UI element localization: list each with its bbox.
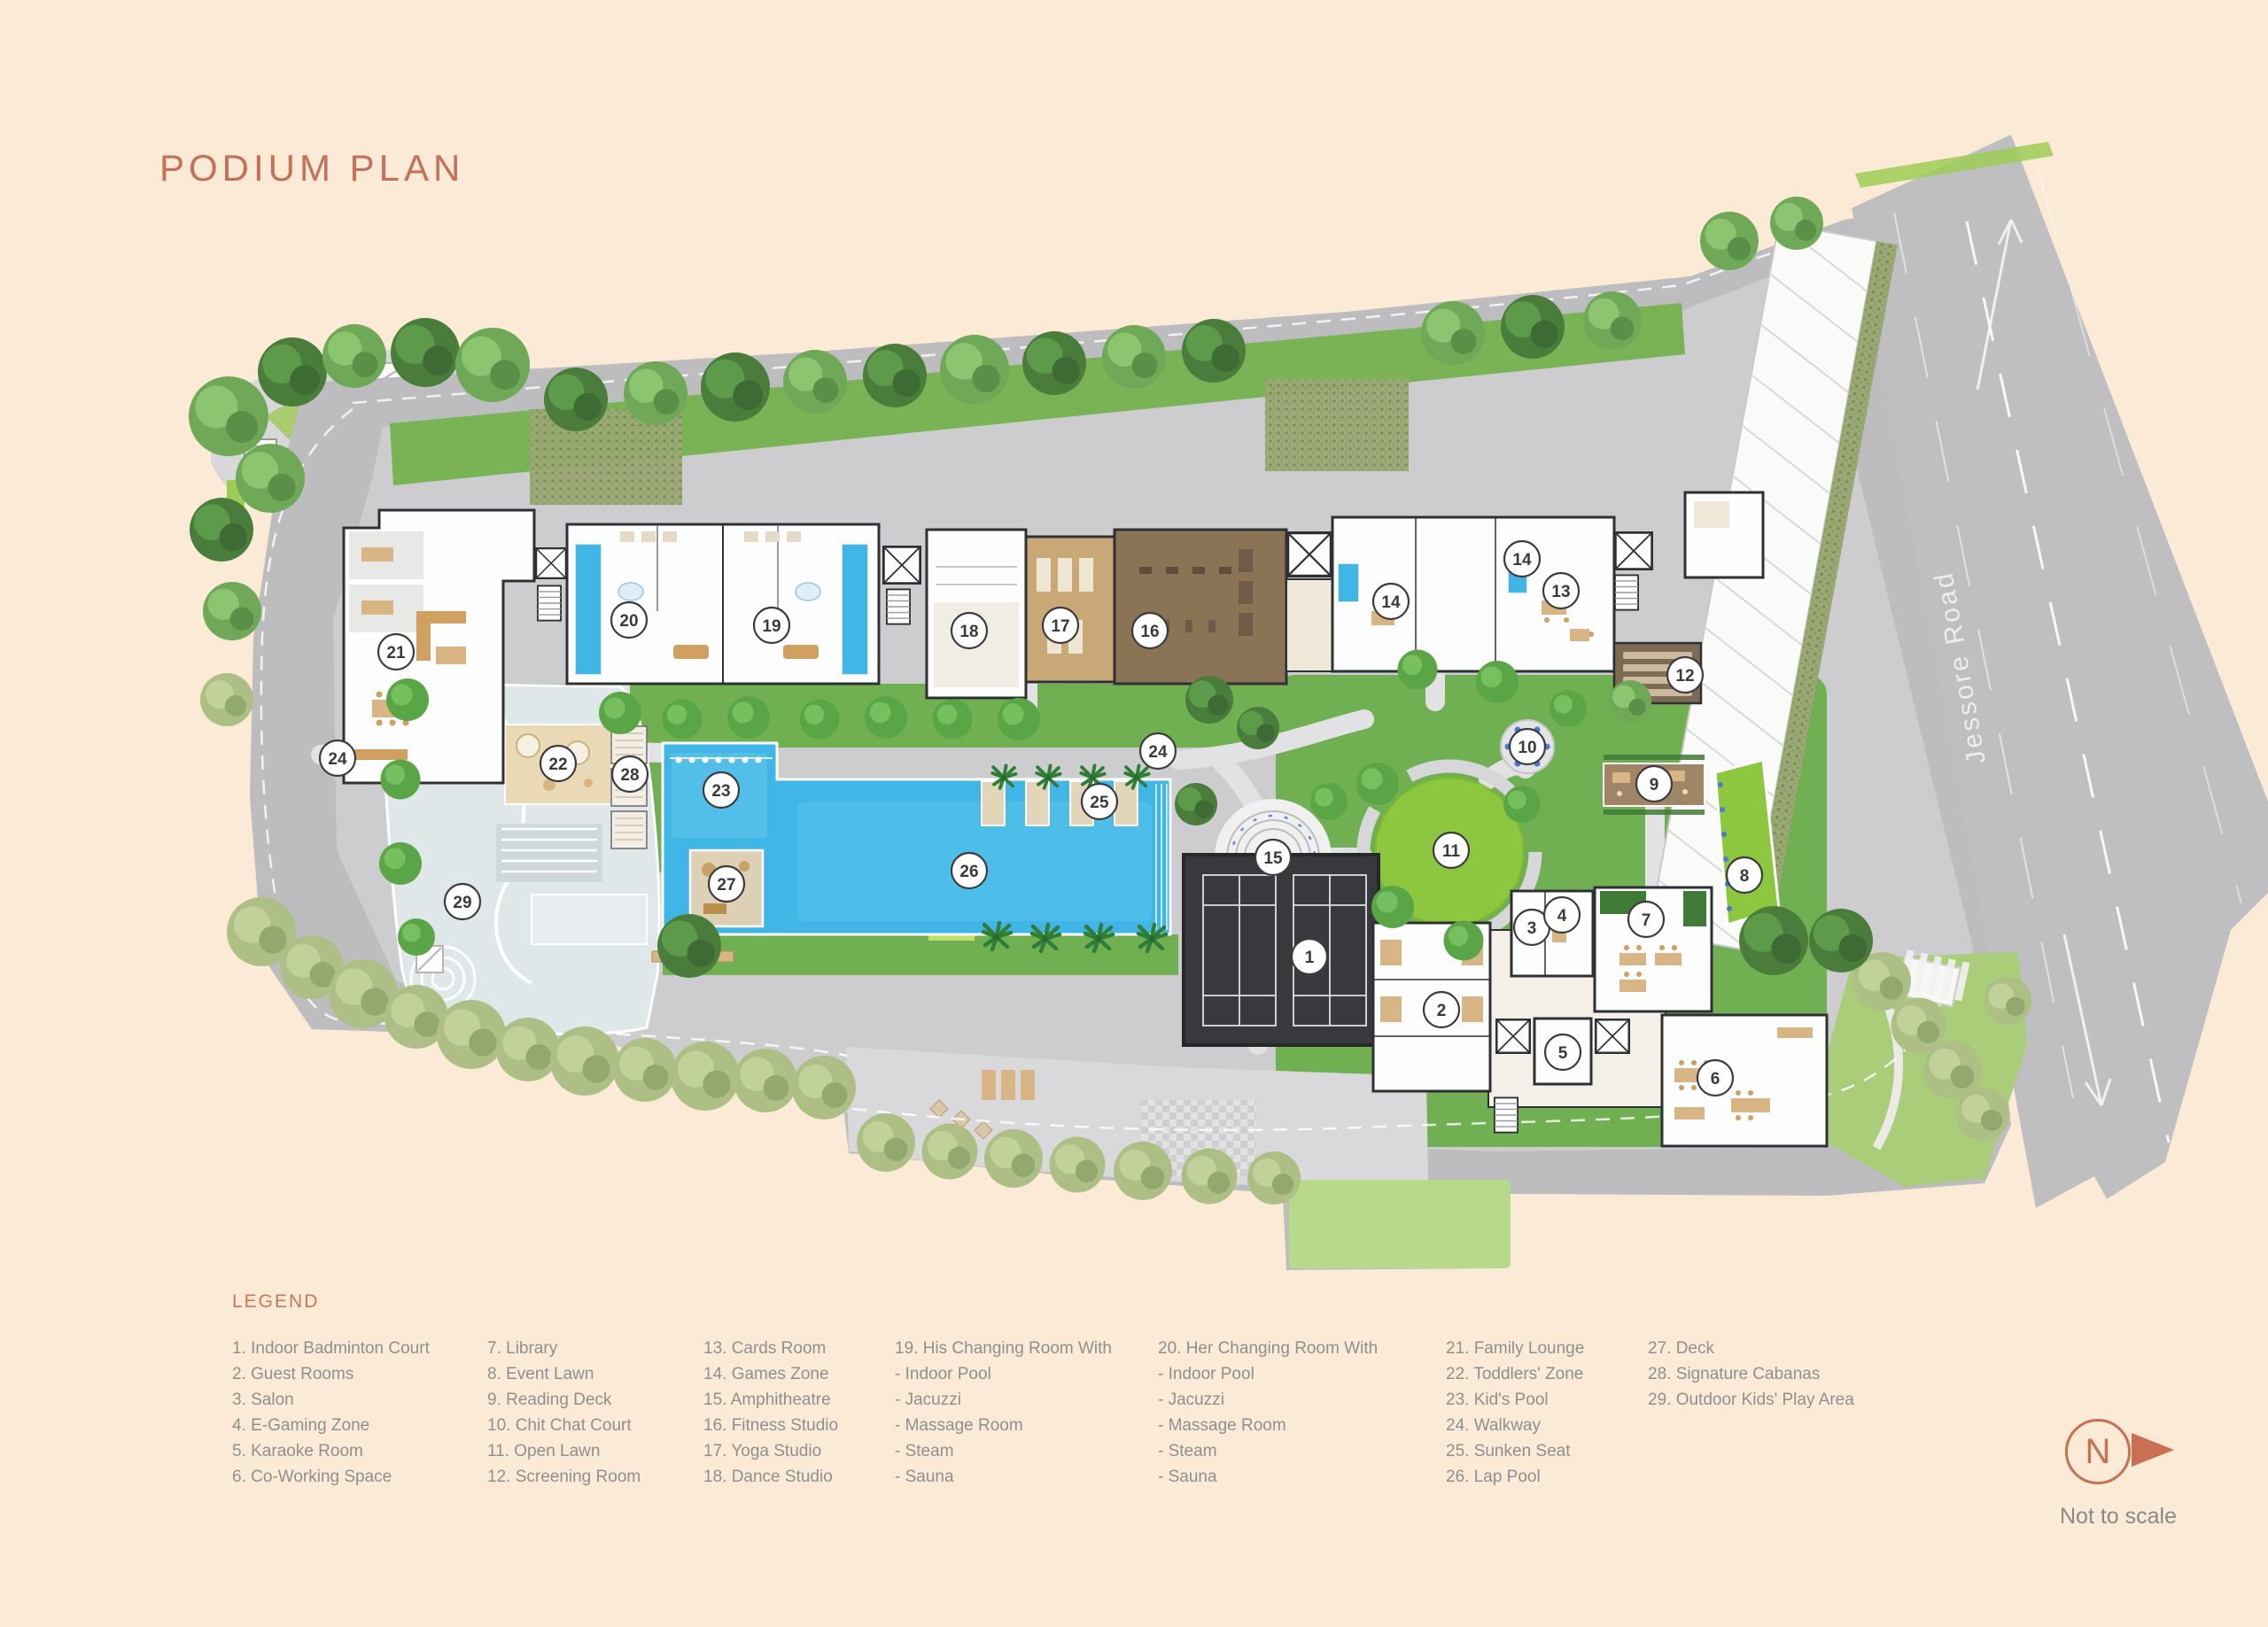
legend-item: 21. Family Lounge	[1446, 1336, 1584, 1361]
legend-item: 14. Games Zone	[703, 1361, 838, 1387]
plan-marker-28: 28	[612, 756, 648, 792]
legend-item: - Indoor Pool	[1158, 1361, 1378, 1387]
svg-text:4: 4	[1557, 907, 1567, 926]
legend-column-3: 13. Cards Room14. Games Zone15. Amphithe…	[703, 1336, 838, 1490]
plan-marker-11: 11	[1433, 833, 1469, 868]
svg-text:17: 17	[1051, 617, 1069, 636]
svg-text:9: 9	[1650, 776, 1659, 794]
legend-item: 22. Toddlers' Zone	[1446, 1361, 1584, 1387]
legend-item: 5. Karaoke Room	[232, 1438, 430, 1464]
svg-text:7: 7	[1642, 911, 1651, 930]
svg-text:12: 12	[1675, 667, 1694, 686]
plan-marker-9: 9	[1636, 766, 1672, 802]
svg-text:14: 14	[1512, 551, 1532, 569]
legend-column-5: 20. Her Changing Room With- Indoor Pool-…	[1158, 1336, 1378, 1490]
plan-marker-24: 24	[320, 740, 355, 776]
plan-marker-5: 5	[1545, 1034, 1581, 1070]
page-title: PODIUM PLAN	[159, 147, 464, 190]
plan-marker-21: 21	[378, 634, 414, 670]
legend-item: - Massage Room	[1158, 1413, 1378, 1438]
plan-marker-23: 23	[703, 772, 739, 808]
legend-item: 27. Deck	[1648, 1336, 1854, 1361]
plan-marker-13: 13	[1543, 573, 1579, 608]
plan-marker-25: 25	[1082, 784, 1117, 819]
legend-item: 25. Sunken Seat	[1446, 1438, 1584, 1464]
svg-text:25: 25	[1090, 794, 1109, 812]
svg-text:3: 3	[1527, 919, 1537, 938]
legend-item: 8. Event Lawn	[487, 1361, 641, 1387]
legend-column-4: 19. His Changing Room With- Indoor Pool-…	[895, 1336, 1112, 1490]
legend-item: 7. Library	[487, 1336, 641, 1361]
legend-item: 20. Her Changing Room With	[1158, 1336, 1378, 1361]
svg-text:24: 24	[1148, 743, 1168, 762]
plan-marker-8: 8	[1727, 857, 1762, 893]
legend-item: 12. Screening Room	[487, 1464, 641, 1490]
plan-marker-12: 12	[1667, 657, 1703, 693]
plan-marker-14: 14	[1504, 541, 1540, 577]
svg-text:28: 28	[620, 766, 639, 785]
svg-text:24: 24	[328, 750, 347, 769]
svg-text:23: 23	[711, 782, 730, 801]
svg-text:20: 20	[619, 612, 638, 631]
plan-marker-22: 22	[540, 746, 576, 781]
plan-marker-6: 6	[1697, 1060, 1733, 1096]
svg-text:13: 13	[1551, 583, 1570, 601]
legend-item: 26. Lap Pool	[1446, 1464, 1584, 1490]
plan-marker-16: 16	[1132, 613, 1168, 648]
legend-item: 2. Guest Rooms	[232, 1361, 430, 1387]
plan-marker-27: 27	[709, 866, 744, 902]
plan-marker-7: 7	[1628, 902, 1664, 937]
legend-item: - Jacuzzi	[895, 1387, 1112, 1413]
plan-marker-29: 29	[445, 884, 480, 919]
legend-item: 3. Salon	[232, 1387, 430, 1413]
svg-text:15: 15	[1263, 849, 1283, 868]
svg-text:8: 8	[1740, 867, 1750, 886]
legend-item: 11. Open Lawn	[487, 1438, 641, 1464]
north-arrow-icon	[2132, 1433, 2174, 1467]
legend-item: - Jacuzzi	[1158, 1387, 1378, 1413]
svg-text:27: 27	[717, 876, 735, 895]
svg-text:22: 22	[548, 755, 567, 774]
plan-marker-24: 24	[1140, 733, 1176, 769]
plan-marker-14: 14	[1373, 584, 1409, 619]
legend-column-1: 1. Indoor Badminton Court2. Guest Rooms3…	[232, 1336, 430, 1490]
svg-text:1: 1	[1305, 949, 1315, 967]
svg-text:18: 18	[959, 623, 978, 641]
bottom-lawn	[1289, 1180, 1511, 1268]
scale-note: Not to scale	[2025, 1504, 2211, 1530]
plan-marker-2: 2	[1424, 992, 1459, 1027]
svg-text:21: 21	[386, 644, 406, 662]
north-compass-icon: N	[2065, 1419, 2131, 1484]
legend-item: - Sauna	[895, 1464, 1112, 1490]
svg-text:5: 5	[1558, 1044, 1568, 1063]
legend-item: 18. Dance Studio	[703, 1464, 838, 1490]
legend-item: - Massage Room	[895, 1413, 1112, 1438]
plan-marker-10: 10	[1510, 729, 1545, 764]
legend-item: 4. E-Gaming Zone	[232, 1413, 430, 1438]
svg-text:2: 2	[1437, 1002, 1447, 1020]
legend-item: - Indoor Pool	[895, 1361, 1112, 1387]
legend-item: 10. Chit Chat Court	[487, 1413, 641, 1438]
legend-column-6: 21. Family Lounge22. Toddlers' Zone23. K…	[1446, 1336, 1584, 1490]
badminton-court	[1184, 855, 1379, 1045]
plan-marker-18: 18	[951, 613, 987, 648]
legend-item: 17. Yoga Studio	[703, 1438, 838, 1464]
plan-marker-19: 19	[754, 608, 789, 643]
legend-item: 29. Outdoor Kids' Play Area	[1648, 1387, 1854, 1413]
plan-marker-4: 4	[1544, 897, 1580, 933]
legend-item: - Steam	[895, 1438, 1112, 1464]
svg-text:16: 16	[1140, 623, 1159, 641]
legend-item: 28. Signature Cabanas	[1648, 1361, 1854, 1387]
svg-text:29: 29	[453, 894, 471, 912]
svg-text:26: 26	[959, 863, 978, 881]
legend-heading: LEGEND	[232, 1291, 319, 1313]
legend-item: 24. Walkway	[1446, 1413, 1584, 1438]
svg-text:14: 14	[1381, 593, 1401, 612]
svg-text:11: 11	[1442, 842, 1461, 861]
plan-marker-17: 17	[1043, 608, 1078, 643]
legend-column-7: 27. Deck28. Signature Cabanas29. Outdoor…	[1648, 1336, 1854, 1413]
legend-item: 9. Reading Deck	[487, 1387, 641, 1413]
page: Jessore Road	[0, 0, 2268, 1627]
svg-text:19: 19	[762, 617, 781, 636]
plan-marker-1: 1	[1292, 939, 1327, 974]
legend-item: 1. Indoor Badminton Court	[232, 1336, 430, 1361]
legend-item: 16. Fitness Studio	[703, 1413, 838, 1438]
legend-item: 13. Cards Room	[703, 1336, 838, 1361]
legend-item: 15. Amphitheatre	[703, 1387, 838, 1413]
legend-column-2: 7. Library8. Event Lawn9. Reading Deck10…	[487, 1336, 641, 1490]
plan-marker-15: 15	[1255, 840, 1291, 875]
legend-item: 19. His Changing Room With	[895, 1336, 1112, 1361]
legend-item: 23. Kid's Pool	[1446, 1387, 1584, 1413]
north-letter: N	[2085, 1432, 2111, 1472]
svg-text:10: 10	[1518, 739, 1536, 757]
plan-marker-20: 20	[611, 602, 647, 638]
plan-marker-26: 26	[951, 853, 987, 888]
legend-item: - Steam	[1158, 1438, 1378, 1464]
legend-item: 6. Co-Working Space	[232, 1464, 430, 1490]
svg-text:6: 6	[1711, 1070, 1720, 1089]
legend-item: - Sauna	[1158, 1464, 1378, 1490]
